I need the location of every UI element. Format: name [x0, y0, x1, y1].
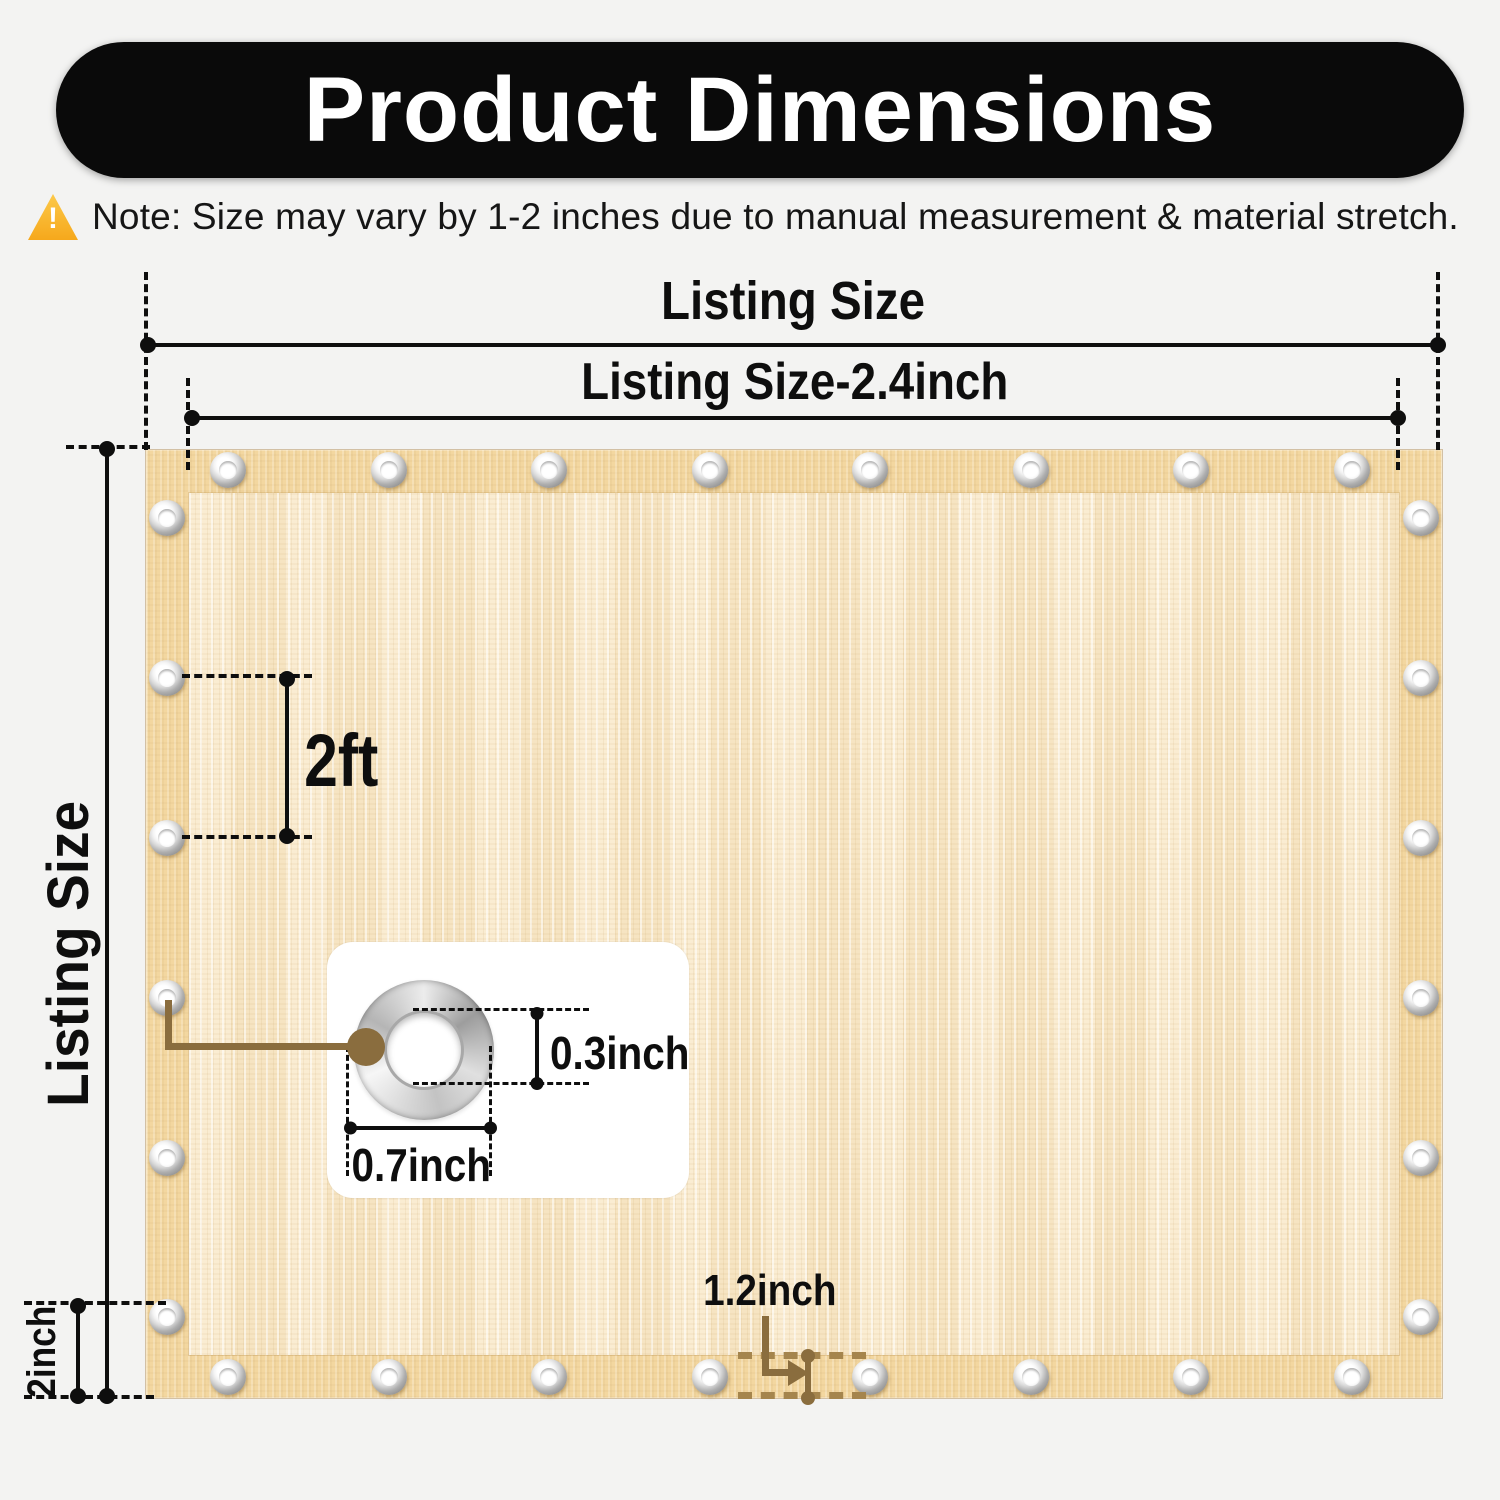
extension-line	[413, 1082, 589, 1085]
grommet	[210, 1359, 246, 1395]
label-listing-width: Listing Size	[146, 270, 1440, 332]
dim-line-hem-height	[76, 1304, 80, 1398]
grommet	[1334, 1359, 1370, 1395]
grommet	[210, 452, 246, 488]
leader-line	[762, 1316, 769, 1376]
warning-triangle-icon: !	[28, 194, 78, 240]
dim-line-grommet-inner	[535, 1011, 539, 1085]
grommet	[371, 452, 407, 488]
grommet	[1403, 660, 1439, 696]
callout-line	[165, 1043, 366, 1050]
grommet	[692, 1359, 728, 1395]
grommet	[852, 452, 888, 488]
page-title: Product Dimensions	[304, 58, 1217, 163]
label-hem-height: 2inch	[22, 1292, 62, 1412]
grommet	[1403, 1140, 1439, 1176]
title-banner: Product Dimensions	[56, 42, 1464, 178]
grommet	[149, 660, 185, 696]
label-hem-width: 1.2inch	[690, 1266, 850, 1316]
grommet	[1173, 1359, 1209, 1395]
label-grommet-spacing: 2ft	[296, 718, 386, 803]
grommet	[1403, 980, 1439, 1016]
label-grommet-inner-diameter: 0.3inch	[550, 1026, 709, 1080]
callout-dot	[347, 1028, 385, 1066]
grommet	[149, 820, 185, 856]
extension-line	[413, 1008, 589, 1011]
grommet	[371, 1359, 407, 1395]
dim-line-listing-height	[105, 447, 109, 1398]
product-dimensions-infographic: Product Dimensions ! Note: Size may vary…	[0, 0, 1500, 1500]
grommet	[531, 1359, 567, 1395]
grommet	[692, 452, 728, 488]
callout-line	[165, 1000, 172, 1048]
shade-cloth-inner-fabric	[189, 493, 1399, 1355]
dim-line-grommet-spacing	[285, 677, 289, 838]
grommet	[1403, 820, 1439, 856]
grommet	[1403, 1299, 1439, 1335]
note-text: Note: Size may vary by 1-2 inches due to…	[92, 196, 1459, 238]
dim-dot	[801, 1391, 815, 1405]
label-listing-height: Listing Size	[39, 779, 99, 1129]
grommet	[149, 1140, 185, 1176]
dim-line-grommet-outer	[348, 1126, 492, 1130]
label-listing-width-inner: Listing Size-2.4inch	[190, 352, 1400, 412]
grommet	[1013, 1359, 1049, 1395]
grommet	[1403, 500, 1439, 536]
shade-cloth	[146, 450, 1442, 1398]
note-row: ! Note: Size may vary by 1-2 inches due …	[28, 194, 1459, 240]
grommet	[1013, 452, 1049, 488]
dim-line-listing-width	[146, 343, 1440, 347]
grommet	[531, 452, 567, 488]
grommet	[1334, 452, 1370, 488]
dim-line-listing-width-inner	[190, 416, 1400, 420]
label-grommet-outer-diameter: 0.7inch	[342, 1138, 498, 1192]
grommet	[149, 500, 185, 536]
dim-dot	[801, 1349, 815, 1363]
grommet	[852, 1359, 888, 1395]
grommet	[1173, 452, 1209, 488]
